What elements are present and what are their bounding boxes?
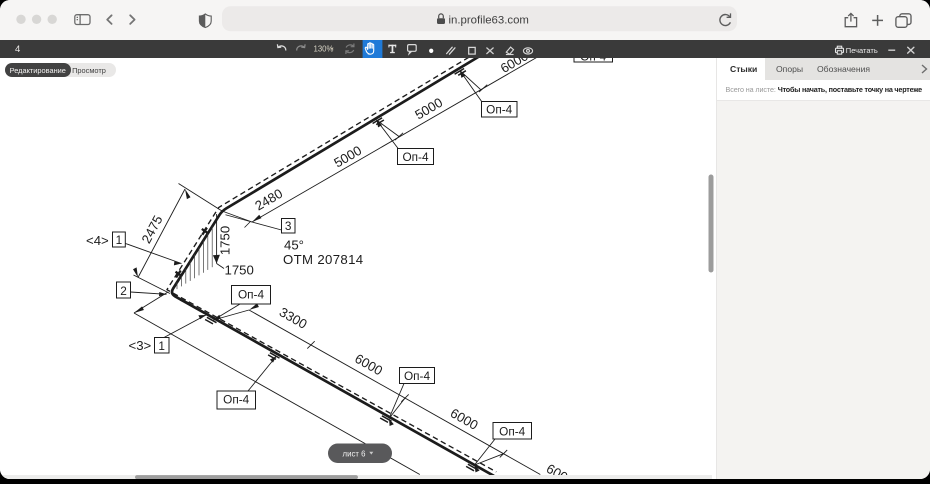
svg-text:1: 1 xyxy=(116,233,123,247)
svg-text:ОТМ 207814: ОТМ 207814 xyxy=(283,252,363,267)
svg-text:1750: 1750 xyxy=(218,225,233,254)
svg-text:6000: 6000 xyxy=(448,405,481,433)
svg-text:лист 6: лист 6 xyxy=(343,449,366,458)
svg-text:5000: 5000 xyxy=(412,94,445,122)
svg-text:2475: 2475 xyxy=(139,212,166,245)
svg-text:1: 1 xyxy=(158,339,165,353)
svg-text:4: 4 xyxy=(15,44,20,55)
svg-text:3: 3 xyxy=(285,219,292,233)
svg-text:3300: 3300 xyxy=(277,304,310,332)
svg-text:1750: 1750 xyxy=(225,262,254,277)
svg-text:Оп-4: Оп-4 xyxy=(499,424,525,438)
svg-text:Оп-4: Оп-4 xyxy=(486,102,512,116)
svg-text:Печатать: Печатать xyxy=(846,46,878,55)
svg-text:130%: 130% xyxy=(314,44,334,53)
svg-text:in.profile63.com: in.profile63.com xyxy=(449,14,529,26)
svg-text:<3>: <3> xyxy=(129,338,152,353)
svg-text:45°: 45° xyxy=(284,237,304,252)
svg-text:6000: 6000 xyxy=(352,350,385,378)
svg-text:2: 2 xyxy=(120,283,127,297)
svg-text:Оп-4: Оп-4 xyxy=(404,369,430,383)
svg-text:Оп-4: Оп-4 xyxy=(402,150,428,164)
svg-text:Оп-4: Оп-4 xyxy=(238,287,264,301)
svg-text:6000: 6000 xyxy=(498,58,531,76)
svg-text:Оп-4: Оп-4 xyxy=(580,58,606,64)
svg-text:Оп-4: Оп-4 xyxy=(223,392,249,406)
svg-text:<4>: <4> xyxy=(86,233,109,248)
